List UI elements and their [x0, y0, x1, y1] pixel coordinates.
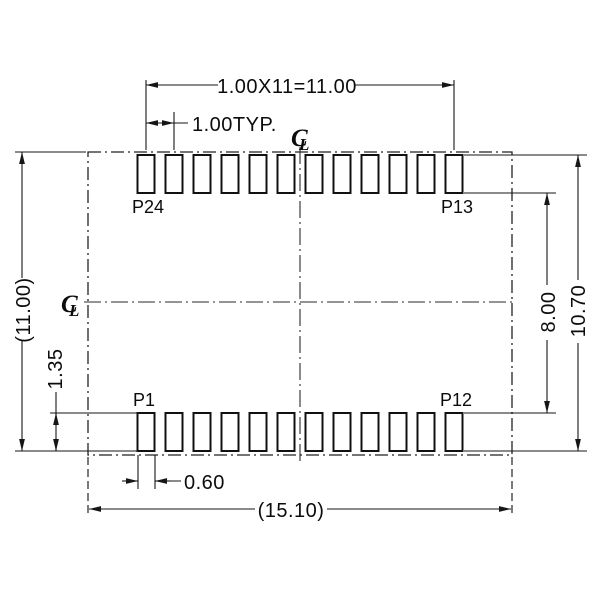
dim-overall-width: (15.10) [258, 500, 325, 522]
dim-pitch-total: 1.00X11=11.00 [217, 76, 357, 98]
pad [446, 155, 463, 193]
pad-label-p24: P24 [132, 197, 164, 217]
drawing-canvas: 1.00X11=11.00 1.00TYP. (11.00) 1.35 8.00… [0, 0, 600, 600]
pad [390, 155, 407, 193]
dim-body-height: (11.00) [13, 277, 35, 342]
svg-text:L: L [68, 301, 79, 320]
pad [418, 413, 435, 451]
pad [250, 155, 267, 193]
svg-text:L: L [298, 135, 309, 154]
centerline-symbol-top: C L [291, 125, 309, 154]
pad [362, 155, 379, 193]
pad [418, 155, 435, 193]
pad [446, 413, 463, 451]
footprint-drawing: 1.00X11=11.00 1.00TYP. (11.00) 1.35 8.00… [0, 0, 600, 600]
pad [390, 413, 407, 451]
dim-pitch-typ: 1.00TYP. [192, 114, 277, 136]
pad [194, 413, 211, 451]
pad-label-p12: P12 [440, 390, 472, 410]
pad [306, 413, 323, 451]
pad [166, 413, 183, 451]
pad [334, 155, 351, 193]
pad [166, 155, 183, 193]
centerline-symbol-left: C L [61, 291, 79, 320]
dim-pad-length: 1.35 [45, 349, 67, 390]
dim-pad-width: 0.60 [184, 472, 225, 494]
pad [222, 413, 239, 451]
dim-rows-outer-span: 10.70 [568, 285, 590, 338]
pad [138, 155, 155, 193]
pad [138, 413, 155, 451]
dim-rows-inner-gap: 8.00 [538, 292, 560, 333]
pad-label-p13: P13 [441, 197, 473, 217]
pad [250, 413, 267, 451]
pad [362, 413, 379, 451]
pad [278, 155, 295, 193]
pad [278, 413, 295, 451]
pad [306, 155, 323, 193]
pad-label-p1: P1 [133, 390, 155, 410]
pad [222, 155, 239, 193]
pad [194, 155, 211, 193]
pad [334, 413, 351, 451]
